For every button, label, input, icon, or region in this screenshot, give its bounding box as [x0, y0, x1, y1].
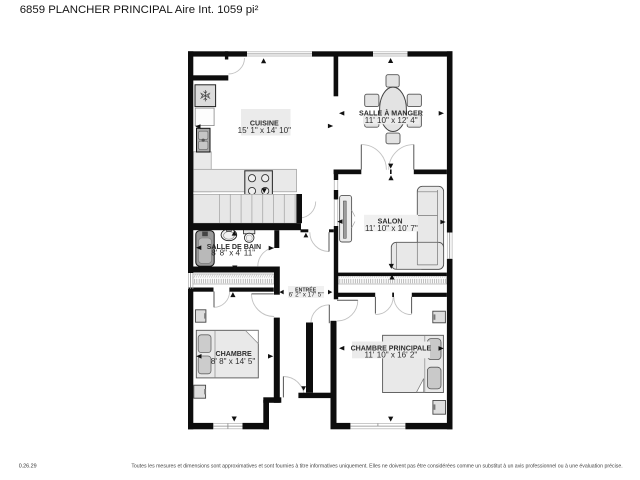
svg-text:8' 8" x 14' 5": 8' 8" x 14' 5": [211, 357, 256, 366]
svg-text:8' 8" x 4' 11": 8' 8" x 4' 11": [211, 248, 255, 257]
svg-text:11' 10" x 12' 4": 11' 10" x 12' 4": [365, 116, 418, 125]
svg-text:6' 2" x 17' 5": 6' 2" x 17' 5": [289, 292, 324, 299]
svg-text:Toutes les mesures et dimensio: Toutes les mesures et dimensions sont ap…: [131, 463, 622, 469]
svg-text:15' 1" x 14' 10": 15' 1" x 14' 10": [238, 126, 292, 135]
svg-text:6859 PLANCHER PRINCIPAL Aire I: 6859 PLANCHER PRINCIPAL Aire Int. 1059 p…: [20, 4, 259, 16]
svg-text:0.26.29: 0.26.29: [19, 464, 37, 470]
svg-text:11' 10" x 10' 7": 11' 10" x 10' 7": [365, 224, 418, 233]
svg-text:11' 10" x 16' 2": 11' 10" x 16' 2": [365, 350, 418, 359]
